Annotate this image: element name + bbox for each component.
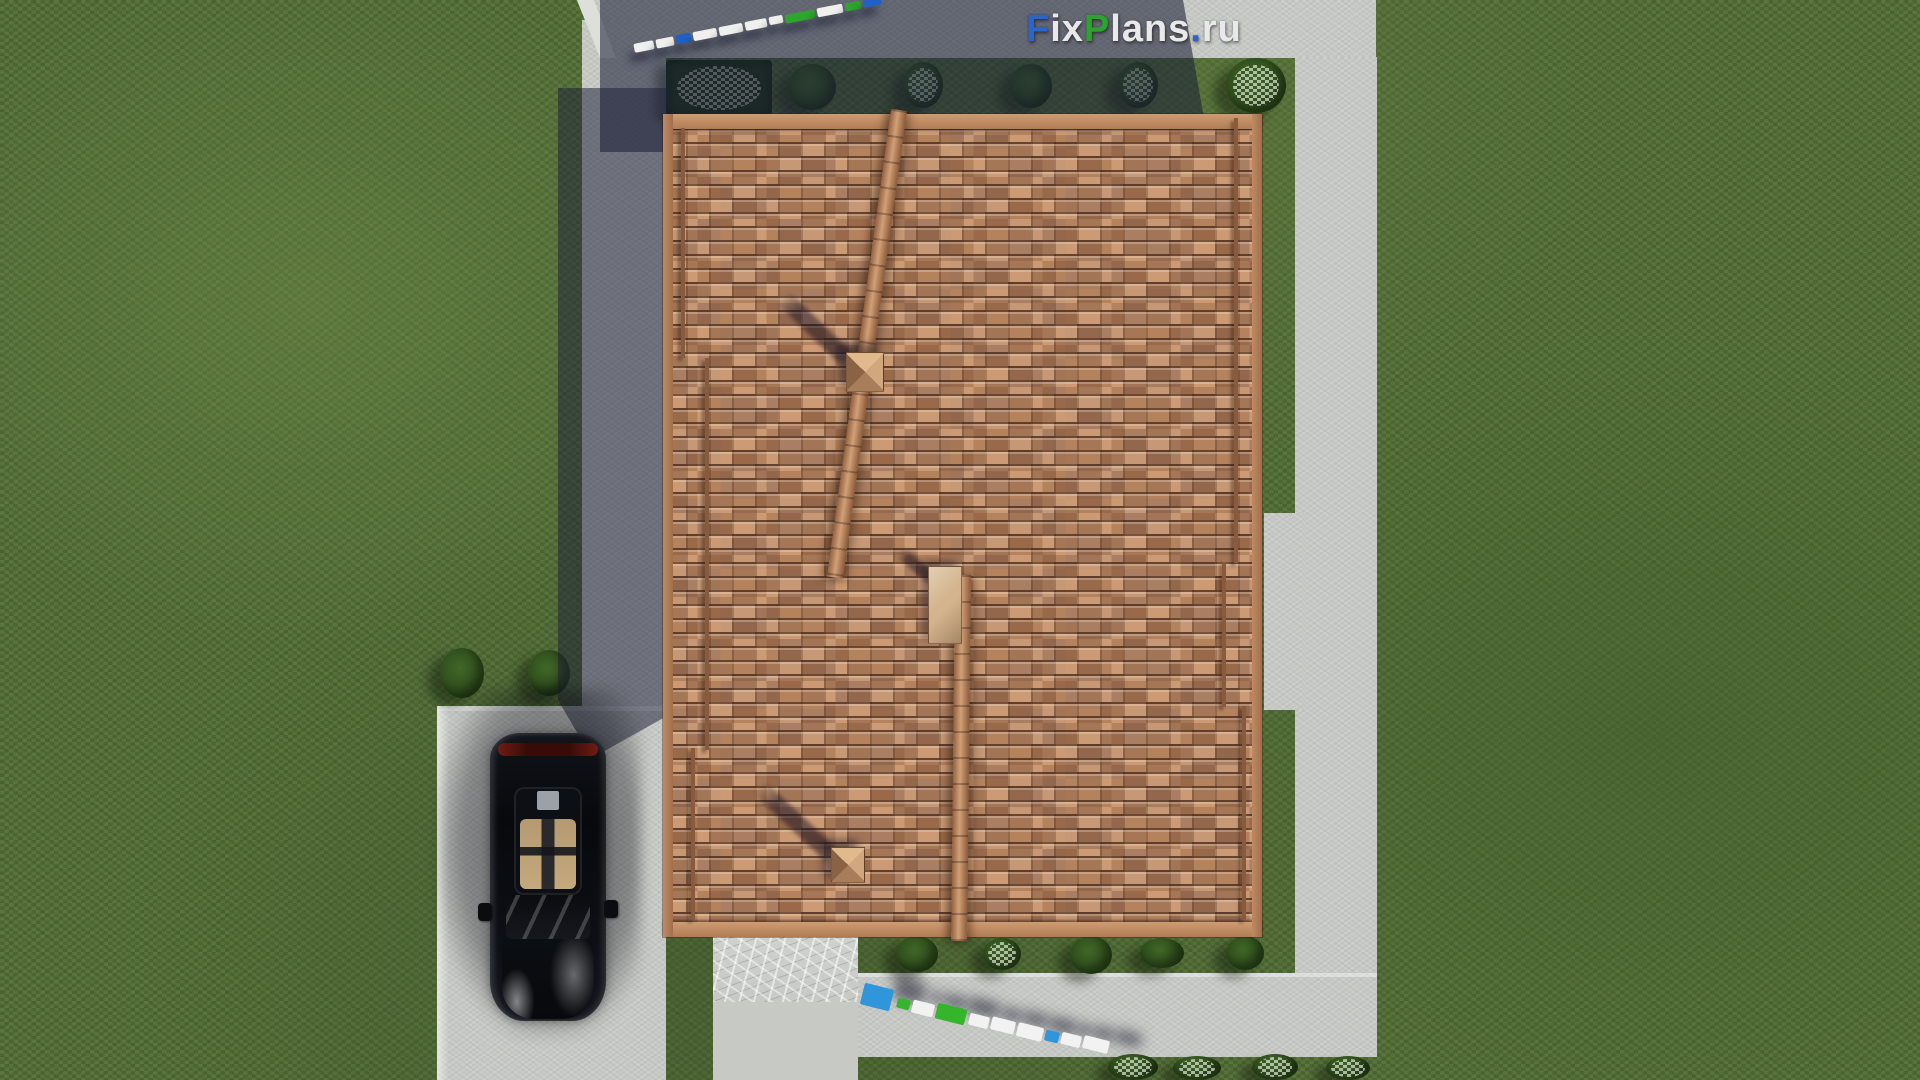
roof-batten [705,358,709,750]
roof-eave-trim-top [663,114,1262,129]
chimney [928,566,962,644]
logo-letter: lans [1110,8,1190,50]
car-mirror-left [478,903,492,921]
roof-batten [1234,118,1238,563]
bush [896,936,938,972]
site-plan-render: FixPlans.ru [0,0,1920,1080]
side-entrance-pad [1264,513,1304,710]
bush [1326,1056,1370,1080]
bush [1173,1056,1221,1080]
bush [1226,58,1286,113]
chimney [831,847,865,883]
logo-letter: P [1084,8,1110,50]
bush [1108,1054,1158,1080]
logo-letter: . [1190,8,1202,50]
roof-batten [1242,706,1246,920]
logo-letter: ix [1050,8,1084,50]
logo-letter: ru [1202,8,1242,50]
right-side-path [1295,57,1377,973]
tiled-roof [663,114,1262,937]
chimney [846,352,884,392]
bush [1070,936,1112,974]
entrance-walkway [713,934,858,1080]
bush [1252,1054,1298,1080]
car-hood [502,939,594,1019]
roof-batten [1222,562,1226,707]
bush [1226,936,1264,970]
roof-batten [691,748,695,920]
car-sunroof [537,791,559,810]
parked-car [480,705,616,1030]
roof-verge-trim-right [1252,114,1262,937]
roof-verge-trim-left [663,114,673,937]
logo-letter: F [1026,8,1050,50]
roof-batten [681,128,685,358]
bush [1140,938,1184,968]
car-interior [520,819,576,889]
fixplans-logo: FixPlans.ru [1026,8,1242,51]
bush [983,938,1021,970]
car-windshield [506,895,590,939]
car-taillights [498,743,598,756]
car-mirror-right [604,900,618,918]
